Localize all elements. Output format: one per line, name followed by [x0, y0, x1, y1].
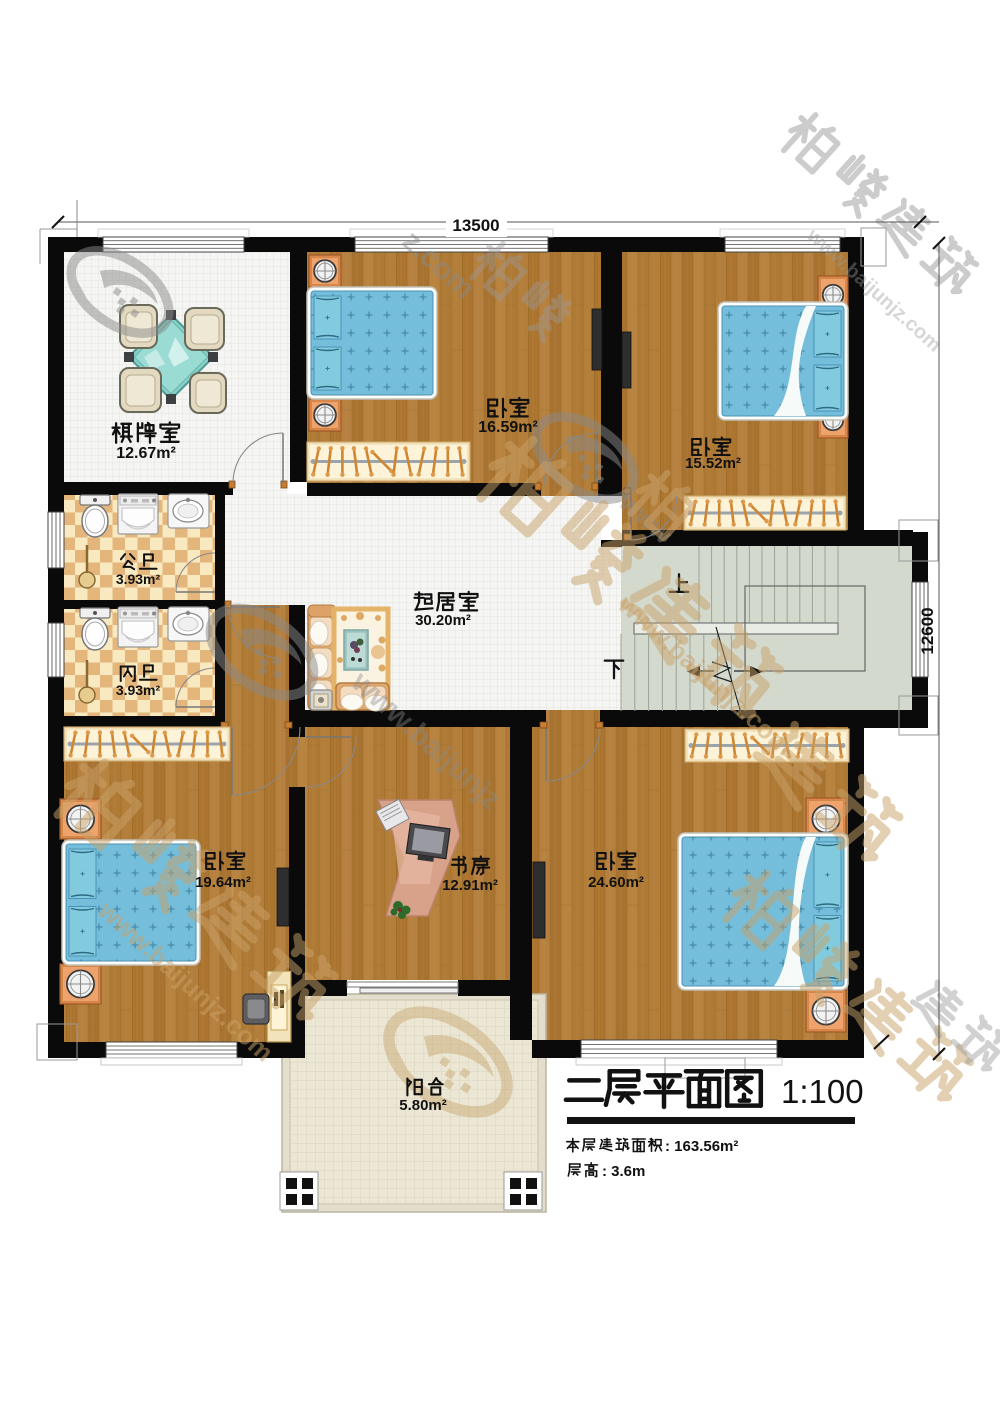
svg-text:30.20m²: 30.20m² — [415, 612, 471, 629]
svg-text:3.93m²: 3.93m² — [116, 571, 161, 587]
svg-text:12.91m²: 12.91m² — [442, 877, 498, 894]
svg-text:3.93m²: 3.93m² — [116, 682, 161, 698]
svg-text:16.59m²: 16.59m² — [478, 419, 538, 436]
svg-text:24.60m²: 24.60m² — [588, 874, 644, 891]
svg-text:: 3.6m: : 3.6m — [602, 1163, 645, 1180]
svg-text:1:100: 1:100 — [781, 1073, 864, 1110]
svg-text:5.80m²: 5.80m² — [399, 1097, 447, 1114]
svg-text:12.67m²: 12.67m² — [116, 445, 176, 462]
svg-text:15.52m²: 15.52m² — [685, 455, 741, 472]
svg-text:19.64m²: 19.64m² — [195, 874, 251, 891]
svg-text:: 163.56m²: : 163.56m² — [665, 1138, 738, 1155]
svg-text:13500: 13500 — [452, 216, 499, 235]
svg-text:12600: 12600 — [918, 607, 937, 654]
